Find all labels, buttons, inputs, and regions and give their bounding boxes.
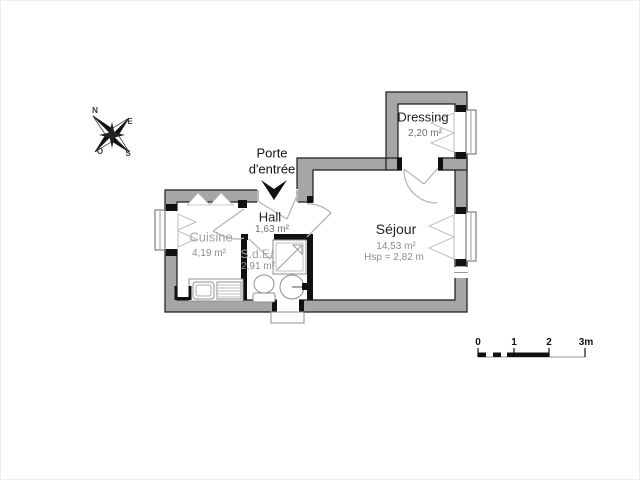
entrance-label-line1: Porte: [256, 147, 287, 160]
scale-label-1: 1: [511, 338, 517, 348]
sejour-window-jamb-bottom: [456, 259, 466, 266]
sde-opening-jamb-right: [299, 300, 304, 312]
compass-north-label: N: [92, 107, 98, 115]
dressing-window-jamb-bottom: [456, 152, 466, 159]
room-area-cuisine: 4,19 m²: [192, 249, 226, 259]
floor-plan-drawing: [0, 0, 640, 480]
room-label-dressing: Dressing: [397, 111, 448, 124]
compass-rose-icon: [76, 99, 146, 169]
room-area-dressing: 2,20 m²: [408, 129, 442, 139]
hall-sejour-door-swing: [307, 204, 331, 237]
sejour-window-jamb-top: [456, 207, 466, 214]
entrance-label-line2: d'entrée: [249, 163, 296, 176]
dressing-door-jamb-left: [397, 158, 402, 170]
exterior-step: [271, 312, 304, 323]
room-ceiling-height-sejour: Hsp = 2,82 m: [364, 253, 424, 263]
cuisine-window-jamb-bottom: [166, 249, 177, 256]
room-label-cuisine: Cuisine: [189, 231, 232, 244]
hall-divider-stub: [307, 196, 313, 203]
sejour-window-casement-icon: [429, 215, 454, 259]
dressing-door-swing: [404, 168, 438, 203]
room-label-hall: Hall: [259, 211, 281, 224]
compass-west-label: O: [97, 148, 103, 156]
cuisine-hall-divider-cap: [238, 200, 247, 208]
sde-bottom-opening: [277, 299, 299, 313]
floor-plan-page: Porte d'entrée Dressing 2,20 m² Séjour 1…: [0, 0, 640, 480]
room-area-sejour: 14,53 m²: [376, 242, 415, 252]
compass-east-label: E: [127, 118, 132, 126]
cuisine-window-opening: [164, 211, 178, 249]
kitchen-sink-icon: [189, 279, 243, 301]
cuisine-window-jamb-top: [166, 204, 177, 211]
room-label-sejour: Séjour: [376, 222, 416, 236]
room-area-hall: 1,63 m²: [255, 225, 289, 235]
dressing-window-jamb-top: [456, 105, 466, 112]
sde-sejour-divider: [307, 236, 313, 300]
dressing-door-jamb-right: [438, 158, 443, 170]
compass-south-label: S: [125, 150, 130, 158]
scale-label-0: 0: [475, 338, 481, 348]
dressing-door-opening: [402, 157, 438, 171]
counter-return: [176, 286, 190, 299]
scale-label-3m: 3m: [579, 338, 593, 348]
scale-label-2: 2: [546, 338, 552, 348]
room-area-sde: 2,91 m²: [241, 262, 275, 272]
washbasin-icon: [280, 275, 308, 299]
room-label-sde: S.d.E.: [241, 248, 274, 260]
toilet-icon: [253, 275, 275, 302]
scale-bar: [478, 348, 585, 357]
shower-icon: [273, 240, 306, 274]
